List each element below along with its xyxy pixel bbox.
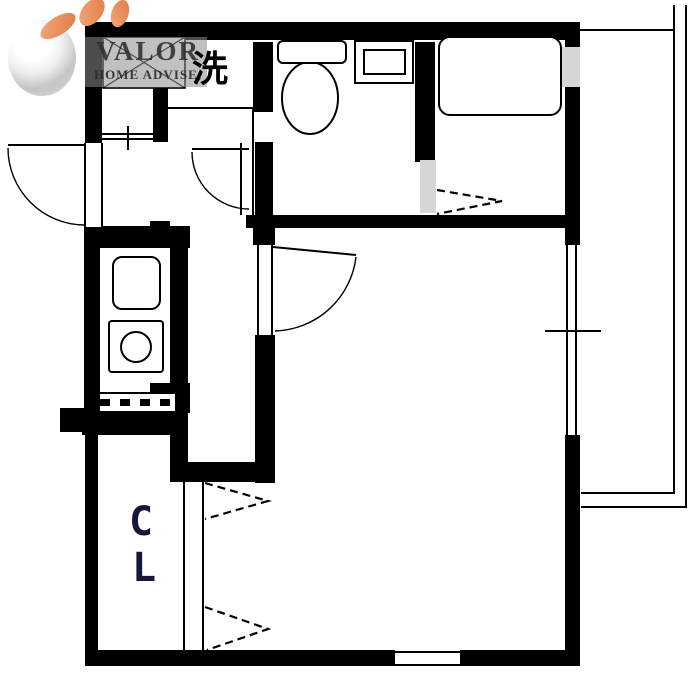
floorplan-canvas: VALOR HOME ADVISE, 洗 C L bbox=[0, 0, 700, 674]
washroom-door-arc bbox=[192, 152, 249, 209]
bath-door-jamb bbox=[420, 160, 436, 213]
laundry-label: 洗 bbox=[192, 52, 228, 88]
toilet-bowl-fixture bbox=[282, 62, 338, 134]
bath-counter-fixture bbox=[562, 47, 580, 87]
door-symbols-layer bbox=[0, 0, 700, 674]
kitchen-sink-fixture bbox=[112, 256, 161, 310]
closet-label-l: L bbox=[132, 548, 156, 588]
living-door-leaf bbox=[273, 247, 356, 255]
toilet-tank-fixture bbox=[277, 40, 347, 64]
closet-folding-door-2 bbox=[205, 607, 268, 650]
bath-folding-door bbox=[437, 190, 502, 214]
washlet-box-inner bbox=[363, 49, 406, 75]
closet-folding-door-1 bbox=[205, 483, 268, 519]
entrance-door-arc bbox=[8, 148, 85, 225]
bathtub-fixture bbox=[438, 36, 562, 116]
closet-label-c: C bbox=[129, 502, 153, 542]
vent-grill-fixture bbox=[100, 392, 175, 413]
stove-burner-icon bbox=[120, 331, 152, 363]
living-door-arc bbox=[275, 257, 356, 331]
vent-grill-slats bbox=[100, 399, 175, 406]
